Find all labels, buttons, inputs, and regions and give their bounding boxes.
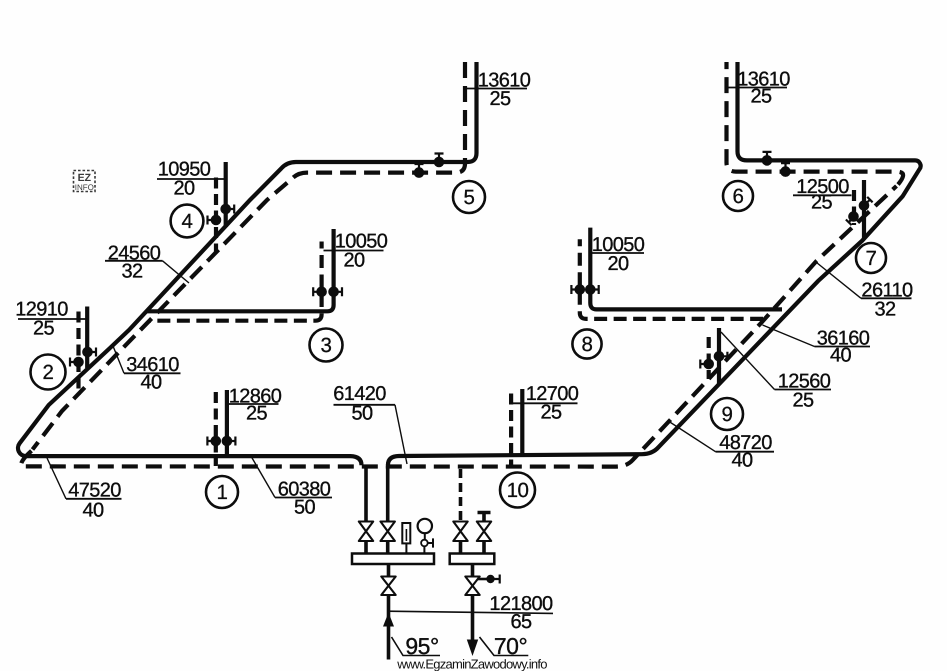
svg-text:25: 25 bbox=[246, 403, 268, 425]
svg-text:25: 25 bbox=[489, 88, 511, 110]
svg-text:25: 25 bbox=[811, 192, 833, 214]
svg-text:50: 50 bbox=[294, 497, 316, 519]
svg-text:25: 25 bbox=[750, 86, 772, 108]
svg-text:40: 40 bbox=[82, 500, 104, 522]
svg-text:25: 25 bbox=[540, 402, 562, 424]
svg-text:47520: 47520 bbox=[68, 480, 121, 502]
svg-text:95°: 95° bbox=[405, 633, 438, 659]
svg-text:25: 25 bbox=[33, 318, 55, 340]
svg-text:7: 7 bbox=[866, 247, 877, 270]
svg-text:9: 9 bbox=[722, 403, 733, 426]
svg-text:50: 50 bbox=[351, 403, 373, 425]
svg-text:20: 20 bbox=[343, 250, 365, 272]
svg-text:20: 20 bbox=[173, 178, 195, 200]
svg-text:40: 40 bbox=[731, 450, 753, 472]
svg-text:32: 32 bbox=[121, 261, 143, 283]
svg-text:1: 1 bbox=[217, 481, 228, 504]
svg-text:8: 8 bbox=[582, 333, 593, 356]
svg-text:2: 2 bbox=[43, 361, 54, 384]
svg-text:www.EgzaminZawodowy.info: www.EgzaminZawodowy.info bbox=[396, 657, 547, 671]
svg-text:25: 25 bbox=[792, 390, 814, 412]
svg-text:65: 65 bbox=[510, 611, 532, 633]
svg-text:32: 32 bbox=[874, 299, 896, 321]
svg-text:20: 20 bbox=[607, 253, 629, 275]
svg-text:INFO: INFO bbox=[75, 183, 94, 192]
svg-text:5: 5 bbox=[464, 186, 475, 209]
svg-text:6: 6 bbox=[733, 185, 744, 208]
svg-text:40: 40 bbox=[140, 372, 162, 394]
svg-text:10: 10 bbox=[507, 479, 529, 502]
svg-text:70°: 70° bbox=[494, 633, 527, 659]
svg-text:40: 40 bbox=[830, 345, 852, 367]
svg-text:4: 4 bbox=[182, 210, 193, 233]
svg-text:3: 3 bbox=[321, 334, 332, 357]
